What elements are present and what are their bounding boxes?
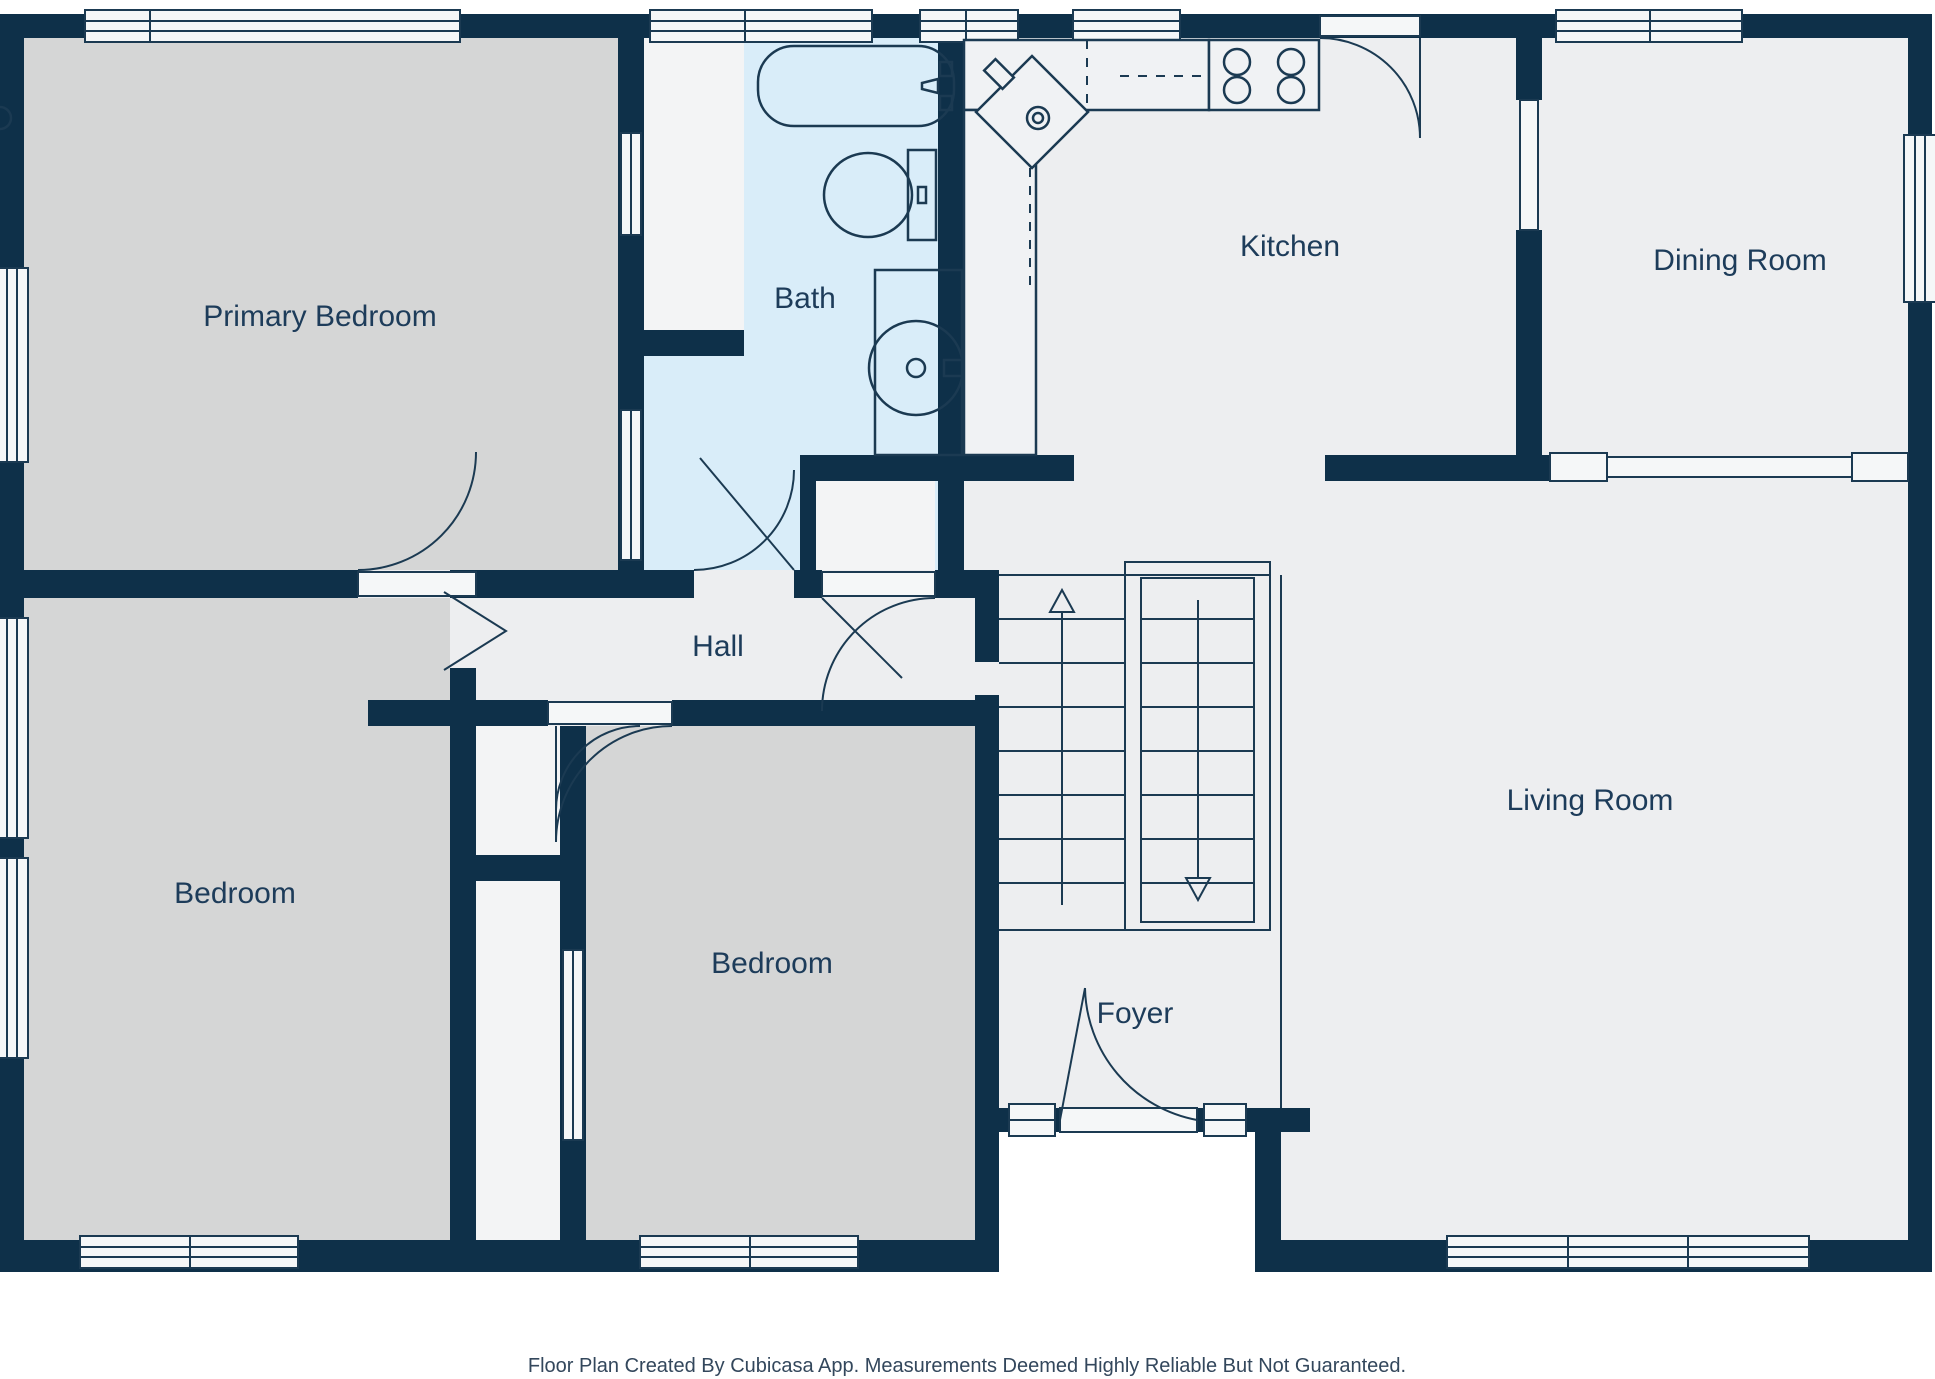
- entry-recess: [999, 1132, 1255, 1272]
- window-kitchen-top-a: [920, 10, 1018, 42]
- bedroom-middle-door-threshold: [548, 702, 672, 724]
- wall-kitchen-dining-b: [1516, 230, 1542, 481]
- floor-linen-closet: [816, 481, 935, 570]
- floor-closet-upper: [476, 726, 560, 855]
- closet-lower-slider: [563, 950, 583, 1140]
- wall-closet-divider: [450, 855, 586, 881]
- window-bath-top: [650, 10, 872, 42]
- cased-opening-left-jamb: [1550, 453, 1607, 481]
- floor-bedroom-middle: [586, 726, 975, 1240]
- wall-kitchen-dining-a: [1516, 38, 1542, 100]
- wall-bedroom-middle-east: [975, 695, 999, 1240]
- room-label-bedroom-middle: Bedroom: [711, 947, 833, 980]
- wall-linen-west: [800, 481, 816, 570]
- primary-closet-slider: [621, 133, 641, 235]
- kitchen-back-door-threshold: [1320, 16, 1420, 36]
- dining-living-opening: [1607, 457, 1852, 477]
- window-primary-top: [85, 10, 460, 42]
- footer-credit: Floor Plan Created By Cubicasa App. Meas…: [528, 1355, 1406, 1377]
- window-dining-top: [1556, 10, 1742, 42]
- room-label-primary-bedroom: Primary Bedroom: [203, 300, 436, 333]
- floor-bath-entry: [644, 356, 800, 570]
- primary-door-threshold: [358, 572, 476, 596]
- window-dining-right: [1904, 135, 1935, 302]
- hall-closet-slider: [621, 410, 641, 560]
- room-label-kitchen: Kitchen: [1240, 230, 1340, 263]
- room-label-hall: Hall: [692, 630, 744, 663]
- wall-hall-north-a: [0, 570, 358, 598]
- window-bedroom-left-b: [0, 858, 28, 1058]
- wall-bath-south: [800, 455, 938, 481]
- room-label-bedroom-left: Bedroom: [174, 877, 296, 910]
- wall-kitchen-living-a: [964, 455, 1074, 481]
- entry-door-threshold: [1060, 1108, 1197, 1132]
- room-label-bath: Bath: [774, 282, 836, 315]
- floor-plan-page: Primary Bedroom Bath Kitchen Dining Room…: [0, 0, 1935, 1379]
- room-label-foyer: Foyer: [1097, 997, 1174, 1030]
- wall-hall-north-c: [794, 570, 822, 598]
- window-bedroom-left-bottom: [80, 1236, 298, 1268]
- floor-bedroom-left: [24, 598, 450, 1240]
- window-bedroom-left-a: [0, 618, 28, 838]
- floor-closet-lower: [476, 881, 560, 1240]
- floor-primary-closet: [644, 38, 744, 330]
- window-living-bottom: [1447, 1236, 1809, 1268]
- floor-plan-canvas: Primary Bedroom Bath Kitchen Dining Room…: [0, 0, 1935, 1379]
- room-label-living-room: Living Room: [1507, 784, 1674, 817]
- wall-primary-closet-bottom: [644, 330, 744, 356]
- wall-hall-south-b: [672, 700, 998, 726]
- window-primary-left: [0, 268, 28, 462]
- wall-hall-stair-stub: [975, 570, 999, 662]
- wall-bath-kitchen: [938, 38, 964, 598]
- window-bedroom-middle-bottom: [640, 1236, 858, 1268]
- window-kitchen-top-b: [1073, 10, 1180, 42]
- wall-hall-north-b: [476, 570, 694, 598]
- cased-opening-right-jamb: [1852, 453, 1908, 481]
- stove-icon: [1209, 40, 1319, 110]
- kitchen-dining-doorway: [1520, 100, 1538, 230]
- room-label-dining-room: Dining Room: [1653, 244, 1826, 277]
- wall-entry-right-connector: [1255, 1108, 1281, 1240]
- wall-bedroom-left-east: [450, 668, 476, 1240]
- linen-door-threshold: [822, 572, 935, 596]
